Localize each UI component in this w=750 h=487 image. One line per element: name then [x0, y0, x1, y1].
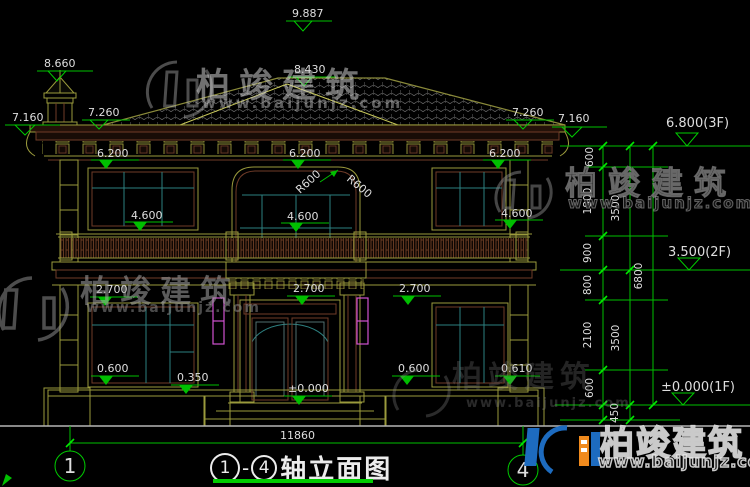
cad-canvas: 9.887 8.660 8.430 7.160 7.260 7.260 7.16… — [0, 0, 750, 487]
dim-ridge: 9.887 — [286, 7, 332, 31]
dim-0600-right: 0.600 — [398, 362, 430, 375]
chain-ticks — [599, 142, 657, 424]
chain-600b: 600 — [584, 378, 596, 398]
dim-2700-center: 2.700 — [293, 282, 325, 295]
dim-turret-label: 8.660 — [44, 57, 76, 70]
dim-roof-mid-label: 8.430 — [294, 63, 326, 76]
wall-lamp-right — [357, 298, 368, 344]
dim-2700-left: 2.700 — [96, 283, 128, 296]
dim-zero-center: ±0.000 — [288, 382, 329, 395]
chain-900: 900 — [582, 243, 594, 263]
watermark-logo-left — [0, 278, 67, 340]
chain-3500b: 3500 — [610, 325, 622, 352]
dim-eave-right-label: 7.160 — [558, 112, 590, 125]
elevation-drawing: 9.887 8.660 8.430 7.160 7.260 7.260 7.16… — [0, 0, 750, 487]
dim-slope-right-label: 7.260 — [512, 106, 544, 119]
chain-3500a: 3500 — [610, 195, 622, 222]
title-axis-end-bubble: 4 — [251, 455, 277, 481]
dim-4600-left: 4.600 — [131, 209, 163, 222]
dim-total-width: 11860 — [280, 429, 315, 442]
dim-ridge-label: 9.887 — [292, 7, 324, 20]
title-underline — [213, 479, 373, 483]
axis-left-number: 1 — [64, 454, 77, 478]
chain-600a: 600 — [584, 147, 596, 167]
chain-2100: 2100 — [582, 322, 594, 349]
title-axis-start-bubble: 1 — [210, 453, 240, 483]
window-1f-right — [432, 303, 508, 387]
dim-2700-right: 2.700 — [399, 282, 431, 295]
chain-800: 800 — [582, 275, 594, 295]
brand-logo-icon — [524, 428, 600, 472]
dim-6200-center: 6.200 — [289, 147, 321, 160]
dim-eave-left-label: 7.160 — [12, 111, 44, 124]
dim-arch-radii: R600 R600 — [293, 167, 374, 200]
wall-lamp-left — [213, 298, 224, 344]
dim-6200-right: 6.200 — [489, 147, 521, 160]
dim-r600-left: R600 — [293, 167, 323, 196]
dim-0350: 0.350 — [177, 371, 209, 384]
chain-1800: 1800 — [582, 188, 594, 215]
corner-mark — [2, 474, 12, 486]
turret — [43, 70, 77, 128]
level-marks: 6.800(3F) 3.500(2F) ±0.000(1F) — [661, 116, 735, 405]
dim-r600-right: R600 — [344, 172, 374, 200]
dim-slope-left-label: 7.260 — [88, 106, 120, 119]
axis-bubble-left: 1 — [55, 451, 85, 481]
level-3f: 6.800(3F) — [666, 116, 729, 131]
title-axis-end: 4 — [259, 458, 270, 478]
dim-0600-left: 0.600 — [97, 362, 129, 375]
title-dash: - — [242, 456, 249, 480]
roof — [103, 78, 565, 125]
chain-6800: 6800 — [633, 263, 645, 290]
dim-4600-center: 4.600 — [287, 210, 319, 223]
chain-450: 450 — [609, 403, 621, 423]
dim-6200-left: 6.200 — [97, 147, 129, 160]
dim-0610: 0.610 — [501, 362, 533, 375]
watermark-logo-bottom-faint — [394, 370, 449, 416]
title-axis-start: 1 — [220, 458, 231, 478]
dim-turret: 8.660 — [37, 57, 93, 81]
balcony-railing — [56, 232, 532, 260]
